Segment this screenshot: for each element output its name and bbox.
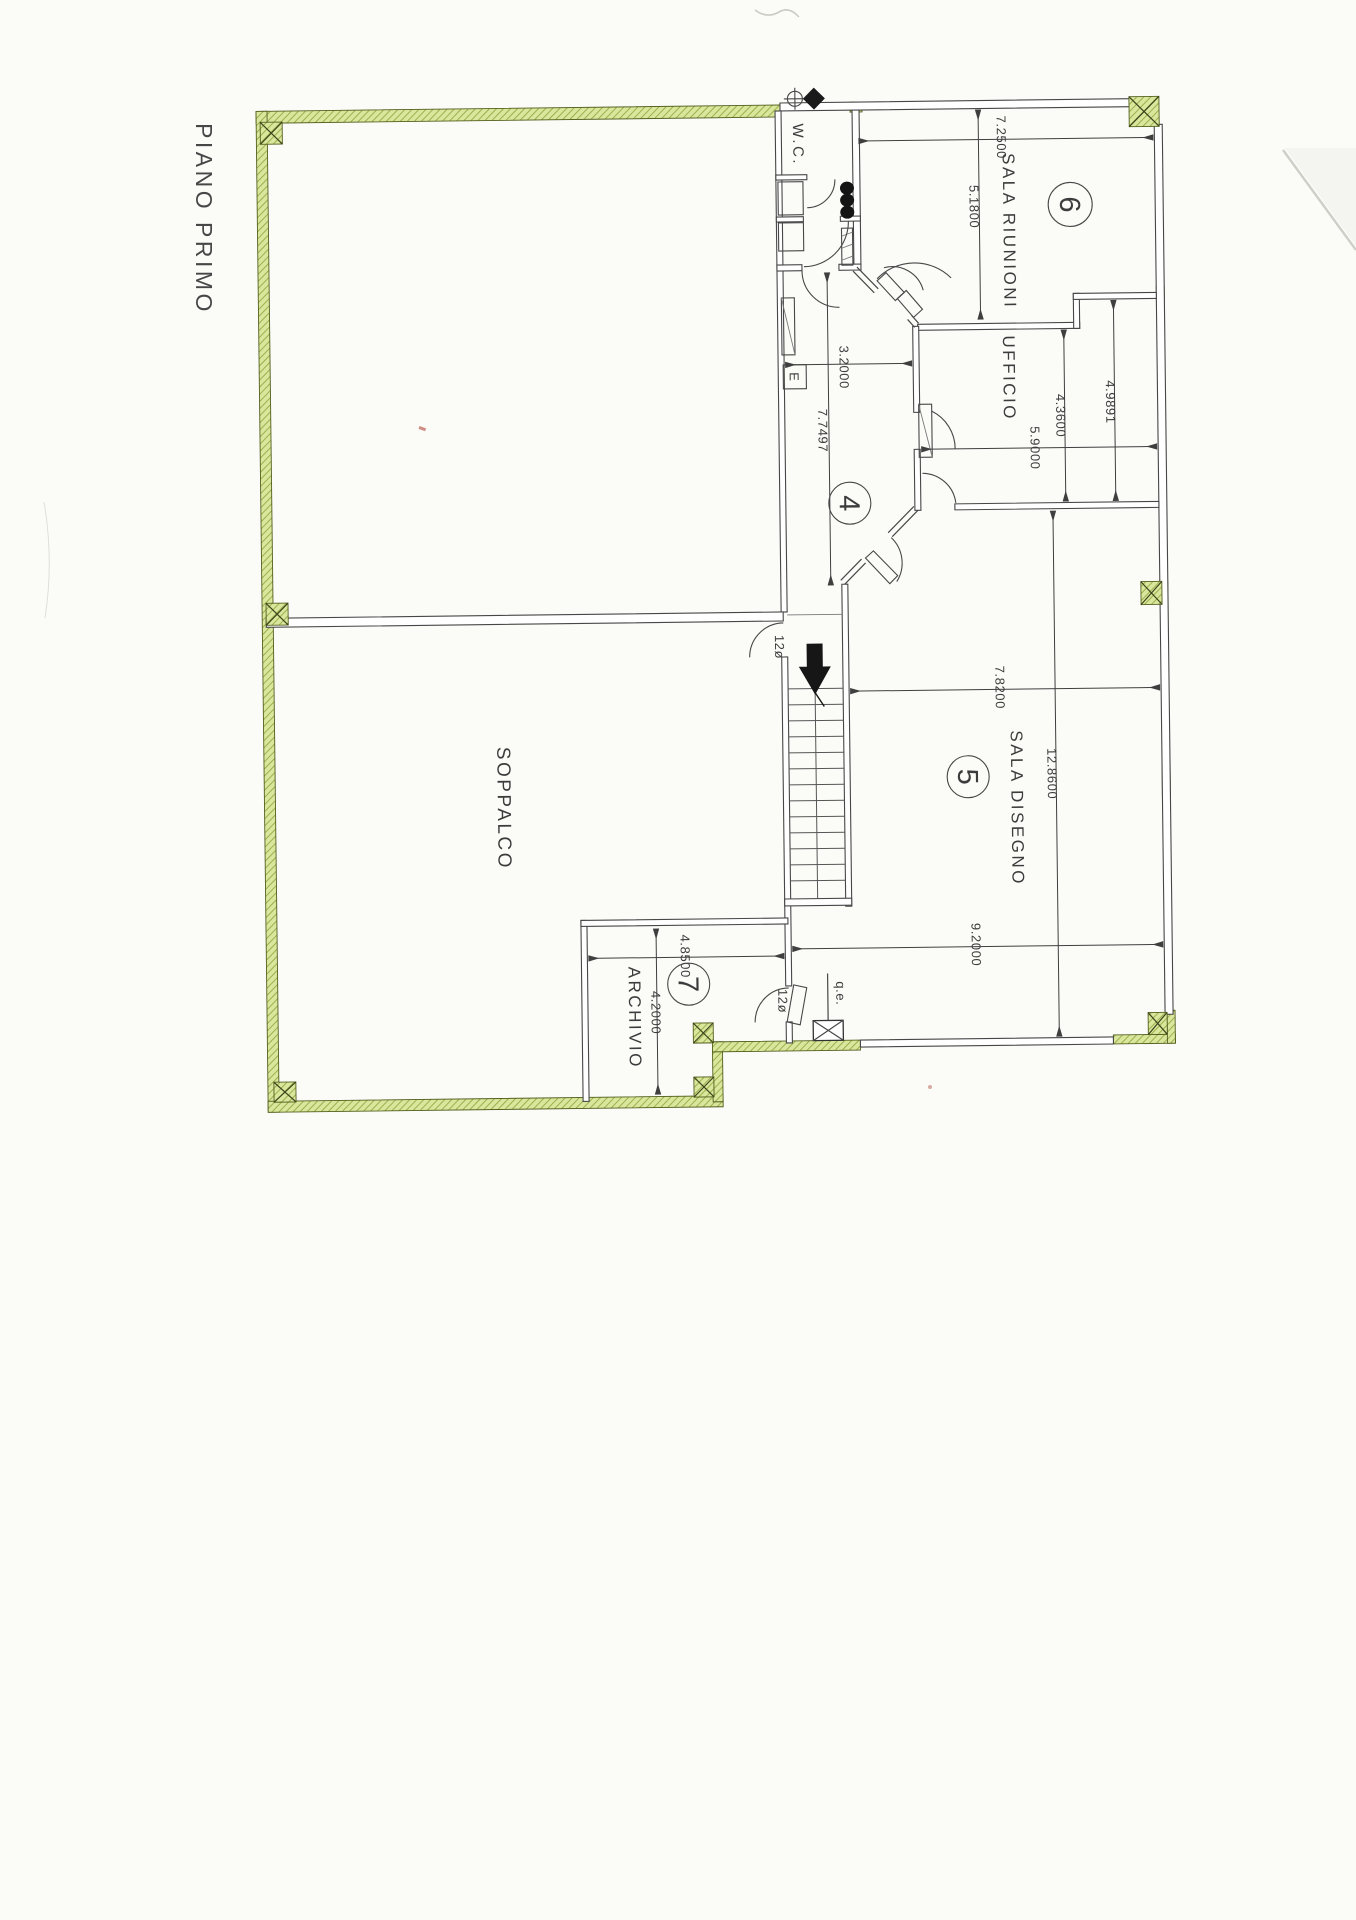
dimension-lines xyxy=(579,108,1164,1094)
room-number-sala-riunioni: 6 xyxy=(1048,182,1093,227)
door-sala-disegno xyxy=(865,538,902,584)
column-bottom-right xyxy=(1148,1012,1167,1034)
room-label-sala-disegno: SALA DISEGNO xyxy=(1007,730,1028,886)
room-labels: W.C. SALA RIUNIONI UFFICIO SALA DISEGNO … xyxy=(485,121,1030,1071)
label-electrical-panel: q.e. xyxy=(833,981,848,1005)
svg-text:5: 5 xyxy=(951,768,983,785)
plan-geometry: 7.2500 5.1800 4.9891 4.3600 5.9000 3.200… xyxy=(256,83,1176,1112)
dim-sala-disegno-bottom: 9.2000 xyxy=(968,923,984,967)
floor-plan-drawing: PIANO PRIMO xyxy=(0,0,1356,1920)
column-bottom-left xyxy=(274,1082,296,1102)
green-walls xyxy=(256,98,1176,1112)
door-arc-wc-corridor xyxy=(802,270,839,307)
column-archivio-upper xyxy=(693,1023,713,1043)
room-label-sala-riunioni: SALA RIUNIONI xyxy=(999,153,1020,309)
room-label-archivio: ARCHIVIO xyxy=(625,967,645,1069)
label-e-box: E xyxy=(787,372,802,381)
room-number-corridoio: 4 xyxy=(829,482,872,525)
dim-ufficio-width: 5.9000 xyxy=(1027,426,1043,470)
dim-corridor-length: 7.7497 xyxy=(815,409,831,453)
wc-toilet xyxy=(840,182,854,219)
svg-text:6: 6 xyxy=(1053,196,1085,213)
dim-sala-disegno-top: 7.8200 xyxy=(992,666,1008,710)
svg-text:4: 4 xyxy=(833,495,865,512)
double-door-sala-riunioni xyxy=(877,262,952,317)
dim-corridor-width: 3.2000 xyxy=(836,345,852,389)
dim-archivio-width: 4.8500 xyxy=(678,934,694,978)
dim-archivio-height: 4.2000 xyxy=(648,991,664,1035)
column-mid-left xyxy=(266,603,288,625)
dim-sala-riunioni-height: 5.1800 xyxy=(966,185,982,229)
room-label-wc: W.C. xyxy=(789,123,807,166)
doors-and-fixtures xyxy=(744,178,963,1041)
door-arc-ufficio-bottom xyxy=(922,473,955,503)
label-door-top: 12ø xyxy=(772,635,787,659)
svg-text:7: 7 xyxy=(671,976,703,993)
room-number-sala-disegno: 5 xyxy=(947,755,990,798)
staircase xyxy=(788,686,846,899)
column-markers xyxy=(260,96,1171,1102)
column-top-right xyxy=(1129,96,1159,126)
room-number-badges: 4 5 6 7 xyxy=(658,182,1102,1005)
label-door-bottom: 12ø xyxy=(775,989,790,1013)
column-top-left xyxy=(260,122,282,144)
partition-walls xyxy=(260,98,1174,1105)
door-arc-wc-1 xyxy=(807,179,835,207)
scanned-floorplan-page: PIANO PRIMO xyxy=(0,0,1356,1920)
dim-sala-disegno-height: 12.8600 xyxy=(1044,748,1060,799)
column-right-mid xyxy=(1141,581,1162,604)
room-label-ufficio: UFFICIO xyxy=(999,335,1019,421)
dim-ufficio-left: 4.3600 xyxy=(1053,394,1069,438)
room-label-soppalco: SOPPALCO xyxy=(492,747,515,870)
dim-ufficio-right: 4.9891 xyxy=(1103,380,1119,424)
page-title: PIANO PRIMO xyxy=(191,123,217,315)
column-archivio-lower xyxy=(694,1077,714,1097)
